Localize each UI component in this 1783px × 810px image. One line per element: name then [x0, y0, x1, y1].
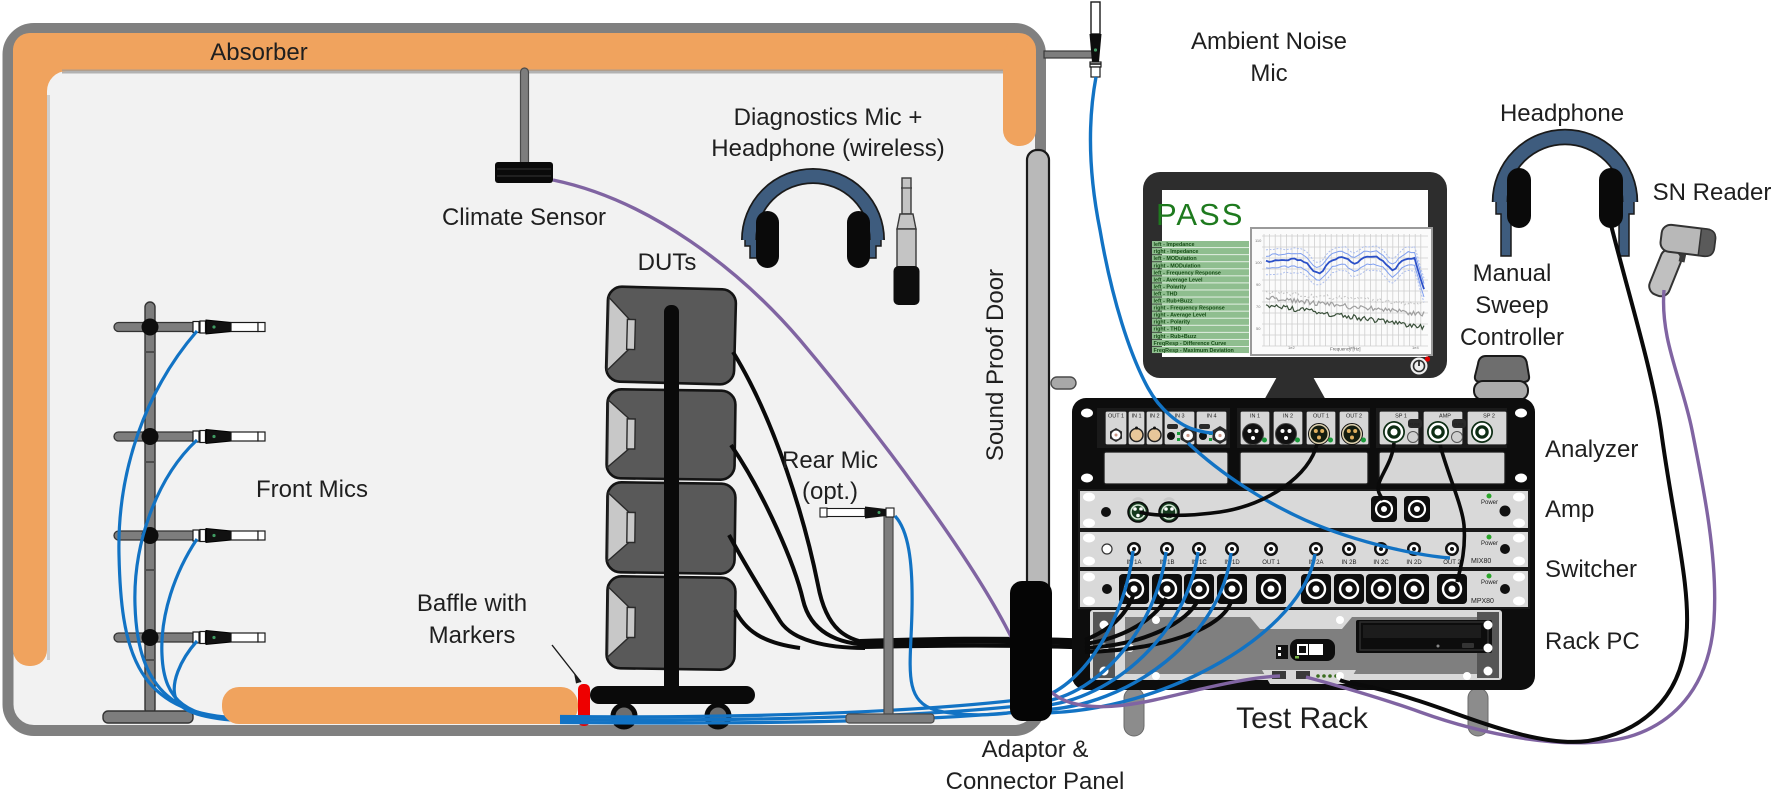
svg-text:Climate Sensor: Climate Sensor: [442, 204, 606, 231]
svg-text:Mic: Mic: [1250, 60, 1287, 87]
svg-text:right - Polarity: right - Polarity: [1154, 320, 1191, 326]
svg-text:Headphone (wireless): Headphone (wireless): [711, 135, 944, 162]
svg-text:Baffle with: Baffle with: [417, 590, 527, 617]
svg-text:IN 1D: IN 1D: [1224, 560, 1240, 566]
svg-text:left - Frequency Response: left - Frequency Response: [1154, 270, 1221, 276]
svg-text:Diagnostics Mic +: Diagnostics Mic +: [734, 104, 923, 131]
svg-text:IN 1: IN 1: [1131, 414, 1141, 420]
svg-text:FreqResp - Maximum Deviation: FreqResp - Maximum Deviation: [1154, 348, 1234, 354]
svg-text:Rack PC: Rack PC: [1545, 628, 1640, 655]
svg-text:Test Rack: Test Rack: [1236, 702, 1369, 735]
svg-text:right - Average Level: right - Average Level: [1154, 313, 1207, 319]
svg-text:left - MODulation: left - MODulation: [1154, 256, 1197, 262]
svg-text:1e2: 1e2: [1288, 345, 1295, 350]
svg-text:Switcher: Switcher: [1545, 556, 1637, 583]
svg-text:SP 1: SP 1: [1395, 414, 1407, 420]
svg-text:(opt.): (opt.): [802, 478, 858, 505]
svg-text:Sweep: Sweep: [1475, 292, 1548, 319]
svg-text:OUT 1: OUT 1: [1313, 414, 1329, 420]
svg-text:IN 2: IN 2: [1149, 414, 1159, 420]
svg-text:IN 2C: IN 2C: [1373, 560, 1389, 566]
svg-text:Ambient Noise: Ambient Noise: [1191, 28, 1347, 55]
svg-text:Connector Panel: Connector Panel: [946, 768, 1125, 795]
svg-text:right - Rub+Buzz: right - Rub+Buzz: [1154, 334, 1197, 340]
svg-text:100: 100: [1255, 260, 1262, 265]
svg-text:left - Rub+Buzz: left - Rub+Buzz: [1154, 299, 1193, 305]
svg-text:Adaptor &: Adaptor &: [982, 736, 1089, 763]
svg-text:Headphone: Headphone: [1500, 100, 1624, 127]
svg-text:right - MODulation: right - MODulation: [1154, 263, 1201, 269]
svg-text:Power: Power: [1481, 541, 1498, 547]
svg-text:left - Impedance: left - Impedance: [1154, 242, 1195, 248]
svg-text:SN Reader: SN Reader: [1653, 179, 1772, 206]
svg-text:IN 1B: IN 1B: [1159, 560, 1174, 566]
svg-text:PASS: PASS: [1156, 197, 1244, 232]
svg-text:FreqResp - Difference Curve: FreqResp - Difference Curve: [1154, 341, 1227, 347]
svg-text:OUT 1: OUT 1: [1108, 414, 1124, 420]
svg-text:AMP: AMP: [1439, 414, 1451, 420]
svg-text:left - THD: left - THD: [1154, 291, 1178, 297]
svg-text:Front Mics: Front Mics: [256, 476, 368, 503]
svg-text:IN 1C: IN 1C: [1191, 560, 1207, 566]
svg-text:MPX80: MPX80: [1471, 598, 1494, 605]
svg-text:DUTs: DUTs: [638, 249, 697, 276]
svg-text:IN 2D: IN 2D: [1406, 560, 1422, 566]
svg-text:FUSE: FUSE: [1410, 422, 1421, 427]
svg-text:IN 1A: IN 1A: [1126, 560, 1141, 566]
svg-text:Manual: Manual: [1473, 260, 1552, 287]
svg-text:IN 2: IN 2: [1283, 414, 1293, 420]
svg-text:OUT 2: OUT 2: [1443, 560, 1461, 566]
svg-text:Rear Mic: Rear Mic: [782, 447, 878, 474]
svg-text:110: 110: [1255, 238, 1262, 243]
svg-text:Absorber: Absorber: [210, 39, 307, 66]
svg-text:SP 2: SP 2: [1483, 414, 1495, 420]
svg-text:IN 4: IN 4: [1206, 414, 1216, 420]
svg-text:Analyzer: Analyzer: [1545, 436, 1638, 463]
svg-text:Sound Proof Door: Sound Proof Door: [982, 269, 1009, 461]
svg-text:OUT 2: OUT 2: [1346, 414, 1362, 420]
svg-text:50: 50: [1256, 326, 1261, 331]
svg-text:1e3: 1e3: [1348, 345, 1355, 350]
svg-text:70: 70: [1256, 304, 1261, 309]
svg-text:Markers: Markers: [429, 622, 516, 649]
svg-text:IN 2B: IN 2B: [1341, 560, 1356, 566]
svg-text:right - THD: right - THD: [1154, 327, 1182, 333]
svg-text:Power: Power: [1481, 500, 1498, 506]
svg-text:1e4: 1e4: [1412, 345, 1419, 350]
svg-text:left - Polarity: left - Polarity: [1154, 284, 1187, 290]
svg-text:OUT 1: OUT 1: [1262, 560, 1280, 566]
svg-text:right - Frequency Response: right - Frequency Response: [1154, 306, 1225, 312]
svg-text:MIX80: MIX80: [1471, 558, 1491, 565]
svg-text:left - Average Level: left - Average Level: [1154, 277, 1204, 283]
svg-text:Frequency [Hz]: Frequency [Hz]: [1330, 347, 1361, 352]
svg-text:Amp: Amp: [1545, 496, 1594, 523]
svg-text:IN 2A: IN 2A: [1308, 560, 1323, 566]
svg-text:IN 1: IN 1: [1250, 414, 1260, 420]
svg-text:Power: Power: [1481, 580, 1498, 586]
svg-text:right - Impedance: right - Impedance: [1154, 249, 1199, 255]
svg-text:Controller: Controller: [1460, 324, 1564, 351]
svg-text:FUSE: FUSE: [1454, 422, 1465, 427]
svg-text:90: 90: [1256, 282, 1261, 287]
